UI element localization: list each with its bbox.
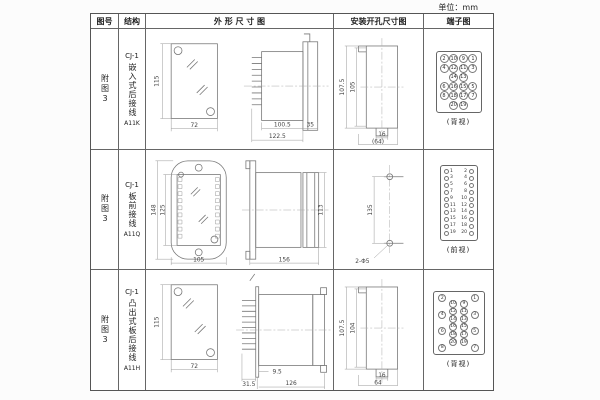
terminal-15: 15 xyxy=(459,82,468,91)
front-view-row1 xyxy=(171,44,217,119)
terminal-spacer xyxy=(469,210,474,215)
dim-w1-row3: 16 xyxy=(378,373,386,379)
dim-d2-row1: 122.5 xyxy=(268,134,285,140)
terminal-block-row1: 2109141211314136161558181772019 xyxy=(436,51,482,113)
spec-table: 图号 结构 外 形 尺 寸 图 安装开孔尺寸图 端子图 附图3 CJ-1 嵌入式… xyxy=(90,13,494,391)
terminal-10: 10 xyxy=(449,54,458,63)
dim-h2-row3: 104 xyxy=(350,322,356,333)
terminal-spacer xyxy=(469,224,474,229)
terminal-spacer: 1357 xyxy=(471,294,479,352)
terminal-19: 19 xyxy=(459,101,468,110)
terminal-spacer: 910 xyxy=(444,197,474,202)
outline-drawing-row1: 115 72 100.5 35 122.5 xyxy=(147,30,333,148)
terminal-7: 7 xyxy=(450,190,453,195)
terminal-11: 11 xyxy=(460,308,468,316)
terminal-15: 15 xyxy=(460,323,468,331)
terminal-2: 2 xyxy=(440,54,449,63)
terminal-18: 18 xyxy=(449,91,458,100)
header-fig-no: 图号 xyxy=(91,14,119,29)
dim-hole-row2: 2-Φ5 xyxy=(355,258,369,264)
terminal-17: 17 xyxy=(459,91,468,100)
terminal-8: 8 xyxy=(464,190,467,195)
dim-front-width-row3: 72 xyxy=(190,364,198,370)
install-dims-row2 xyxy=(372,176,388,257)
dim-w2-row3: 64 xyxy=(374,380,382,386)
install-centerlines-row3 xyxy=(360,279,403,383)
dim-pitch-row2: 135 xyxy=(368,204,374,215)
terminal-1: 1 xyxy=(471,294,479,302)
terminal-10: 10 xyxy=(461,197,467,202)
terminal-spacer xyxy=(468,101,477,110)
terminal-4: 4 xyxy=(440,64,449,73)
model-row2: CJ-1 xyxy=(125,181,139,189)
terminal-3: 3 xyxy=(450,176,453,181)
terminal-spacer xyxy=(444,190,449,195)
install-holes-row2 xyxy=(383,173,403,245)
terminal-spacer xyxy=(444,169,449,174)
terminal-2: 2 xyxy=(464,170,467,175)
model-row1: CJ-1 xyxy=(125,52,139,60)
install-shape-row1 xyxy=(358,46,397,136)
dim-d1-row3: 31.5 xyxy=(242,382,255,388)
terminal-spacer: 1920 xyxy=(444,231,474,236)
terminal-1: 1 xyxy=(450,170,453,175)
structure-type-row3: 凸出式板后接线 xyxy=(128,299,136,362)
dim-h2-row1: 105 xyxy=(350,81,356,92)
unit-label: 单位：mm xyxy=(90,2,492,13)
terminal-cell-row2: 1234567891011121314151617181920 (前视) xyxy=(424,150,493,270)
terminal-2: 2 xyxy=(438,294,446,302)
terminal-spacer: 34 xyxy=(444,176,474,181)
terminal-cell-row1: 2109141211314136161558181772019 (背视) xyxy=(424,29,493,150)
terminal-spacer xyxy=(469,197,474,202)
terminal-spacer: 2019 xyxy=(440,101,478,110)
terminal-19: 19 xyxy=(460,338,468,346)
terminal-spacer: 21091 xyxy=(440,54,478,63)
terminal-spacer xyxy=(440,101,449,110)
terminal-20: 20 xyxy=(461,231,467,236)
structure-cell-row2: CJ-1 板前接线 A11Q xyxy=(119,150,146,270)
terminal-spacer: 616155 xyxy=(440,82,478,91)
terminal-spacer xyxy=(444,197,449,202)
structure-code-row2: A11Q xyxy=(124,231,140,238)
terminal-spacer xyxy=(444,210,449,215)
terminal-spacer xyxy=(444,203,449,208)
terminal-8: 8 xyxy=(440,91,449,100)
terminal-spacer: 12 xyxy=(444,169,474,174)
dim-front-inner-row2: 125 xyxy=(160,204,166,215)
dim-front-width-row1: 72 xyxy=(190,123,198,129)
terminal-6: 6 xyxy=(438,327,446,335)
terminal-spacer xyxy=(469,231,474,236)
fig-no-cell-row1: 附图3 xyxy=(91,29,119,150)
install-dims-row1 xyxy=(344,46,397,145)
terminal-8: 8 xyxy=(438,344,446,352)
terminal-10: 10 xyxy=(449,300,457,308)
terminal-spacer: 1516 xyxy=(444,217,474,222)
terminal-14: 14 xyxy=(449,73,458,82)
structure-code-row3: A11H xyxy=(124,365,140,372)
dim-front-width-row2: 105 xyxy=(193,257,204,263)
install-cell-row3: 107.5 104 16 64 xyxy=(334,270,424,390)
terminal-caption-row2: (前视) xyxy=(447,245,470,255)
structure-type-row2: 板前接线 xyxy=(128,192,136,228)
fig-no-cell-row3: 附图3 xyxy=(91,270,119,390)
terminal-caption-row1: (背视) xyxy=(447,117,470,127)
terminal-1: 1 xyxy=(468,54,477,63)
install-drawing-row3: 107.5 104 16 64 xyxy=(335,271,423,389)
install-dims-row3 xyxy=(344,287,397,386)
terminal-spacer xyxy=(444,231,449,236)
terminal-6: 6 xyxy=(440,82,449,91)
terminal-spacer: 1413 xyxy=(440,73,478,82)
side-view-row3 xyxy=(241,274,326,377)
structure-cell-row1: CJ-1 嵌入式后接线 A11K xyxy=(119,29,146,150)
dim-d3-row1: 35 xyxy=(306,122,314,128)
structure-code-row1: A11K xyxy=(124,120,140,127)
outline-cell-row1: 115 72 100.5 35 122.5 xyxy=(146,29,334,150)
terminal-13: 13 xyxy=(450,210,456,215)
terminal-spacer xyxy=(469,190,474,195)
terminal-3: 3 xyxy=(468,64,477,73)
outline-drawing-row2: 148 125 105 156 113 xyxy=(147,151,333,269)
terminal-spacer xyxy=(440,73,449,82)
terminal-spacer xyxy=(469,203,474,208)
terminal-13: 13 xyxy=(459,73,468,82)
terminal-20: 20 xyxy=(449,338,457,346)
terminal-block-row2: 1234567891011121314151617181920 xyxy=(440,165,478,241)
terminal-20: 20 xyxy=(449,101,458,110)
outline-cell-row3: 115 72 9.5 31.5 126 xyxy=(146,270,334,390)
terminal-15: 15 xyxy=(450,217,456,222)
dim-front-height-row3: 115 xyxy=(154,316,160,327)
terminal-spacer: 101214161820 xyxy=(449,300,457,346)
terminal-spacer xyxy=(444,217,449,222)
terminal-spacer: 818177 xyxy=(440,91,478,100)
terminal-19: 19 xyxy=(450,231,456,236)
install-centerlines-row1 xyxy=(360,38,403,142)
dim-d3-row3: 126 xyxy=(285,381,296,387)
fig-no-row3: 附图3 xyxy=(101,315,109,346)
terminal-14: 14 xyxy=(461,210,467,215)
outline-cell-row2: 148 125 105 156 113 xyxy=(146,150,334,270)
fig-no-row1: 附图3 xyxy=(101,74,109,105)
terminal-9: 9 xyxy=(450,197,453,202)
terminal-13: 13 xyxy=(460,315,468,323)
dim-side-height-row2: 113 xyxy=(318,204,324,215)
terminal-7: 7 xyxy=(471,344,479,352)
terminal-16: 16 xyxy=(449,323,457,331)
dim-h1-row1: 107.5 xyxy=(339,78,345,95)
terminal-spacer: 412113 xyxy=(440,64,478,73)
terminal-12: 12 xyxy=(449,64,458,73)
terminal-4: 4 xyxy=(464,176,467,181)
fig-no-cell-row2: 附图3 xyxy=(91,150,119,270)
terminal-5: 5 xyxy=(450,183,453,188)
structure-cell-row3: CJ-1 凸出式板后接线 A11H xyxy=(119,270,146,390)
dim-d1-row1: 100.5 xyxy=(273,122,290,128)
install-cell-row1: 107.5 105 16 (64) xyxy=(334,29,424,150)
terminal-7: 7 xyxy=(468,91,477,100)
terminal-spacer xyxy=(444,183,449,188)
fig-no-row2: 附图3 xyxy=(101,194,109,225)
structure-type-row1: 嵌入式后接线 xyxy=(128,63,136,117)
terminal-16: 16 xyxy=(461,217,467,222)
side-view-row1 xyxy=(251,34,317,130)
terminal-spacer: 2468 xyxy=(438,294,446,352)
terminal-9: 9 xyxy=(459,54,468,63)
dim-w1-row1: 16 xyxy=(378,132,386,138)
terminal-5: 5 xyxy=(471,327,479,335)
terminal-spacer xyxy=(469,183,474,188)
terminal-spacer: 78 xyxy=(444,190,474,195)
terminal-spacer xyxy=(469,176,474,181)
terminal-block-row3: 2468101214161820911131517191357 xyxy=(433,291,485,355)
front-view-row3 xyxy=(171,285,217,360)
dim-h1-row3: 107.5 xyxy=(339,319,345,336)
terminal-3: 3 xyxy=(471,311,479,319)
dim-d2-row3: 9.5 xyxy=(272,369,282,375)
install-cell-row2: 135 2-Φ5 xyxy=(334,150,424,270)
terminal-4: 4 xyxy=(438,311,446,319)
dim-front-height-row2: 148 xyxy=(151,204,157,215)
terminal-spacer: 1314 xyxy=(444,210,474,215)
terminal-spacer: 1718 xyxy=(444,224,474,229)
install-shape-row3 xyxy=(358,287,397,377)
terminal-spacer xyxy=(444,224,449,229)
terminal-spacer: 1112 xyxy=(444,203,474,208)
outline-drawing-row3: 115 72 9.5 31.5 126 xyxy=(147,271,333,389)
terminal-18: 18 xyxy=(461,224,467,229)
terminal-9: 9 xyxy=(460,300,468,308)
terminal-spacer xyxy=(468,73,477,82)
dim-side-length-row2: 156 xyxy=(278,257,289,263)
terminal-6: 6 xyxy=(464,183,467,188)
terminal-5: 5 xyxy=(468,82,477,91)
terminal-17: 17 xyxy=(450,224,456,229)
install-drawing-row1: 107.5 105 16 (64) xyxy=(335,30,423,148)
terminal-spacer xyxy=(444,176,449,181)
terminal-12: 12 xyxy=(461,204,467,209)
terminal-caption-row3: (背视) xyxy=(447,359,470,369)
terminal-14: 14 xyxy=(449,315,457,323)
terminal-18: 18 xyxy=(449,331,457,339)
terminal-spacer xyxy=(469,169,474,174)
terminal-cell-row3: 2468101214161820911131517191357 (背视) xyxy=(424,270,493,390)
model-row3: CJ-1 xyxy=(125,288,139,296)
terminal-spacer: 91113151719 xyxy=(460,300,468,346)
header-terminal: 端子图 xyxy=(424,14,493,29)
terminal-12: 12 xyxy=(449,308,457,316)
install-drawing-row2: 135 2-Φ5 xyxy=(335,151,423,269)
header-outline: 外 形 尺 寸 图 xyxy=(146,14,334,29)
terminal-17: 17 xyxy=(460,331,468,339)
front-terminals-row2 xyxy=(178,177,219,238)
terminal-11: 11 xyxy=(450,204,456,209)
header-install: 安装开孔尺寸图 xyxy=(334,14,424,29)
dim-front-height-row1: 115 xyxy=(154,75,160,86)
terminal-spacer: 56 xyxy=(444,183,474,188)
terminal-11: 11 xyxy=(459,64,468,73)
terminal-spacer xyxy=(469,217,474,222)
header-structure: 结构 xyxy=(119,14,146,29)
terminal-16: 16 xyxy=(449,82,458,91)
dim-w2-row1: (64) xyxy=(372,139,384,145)
